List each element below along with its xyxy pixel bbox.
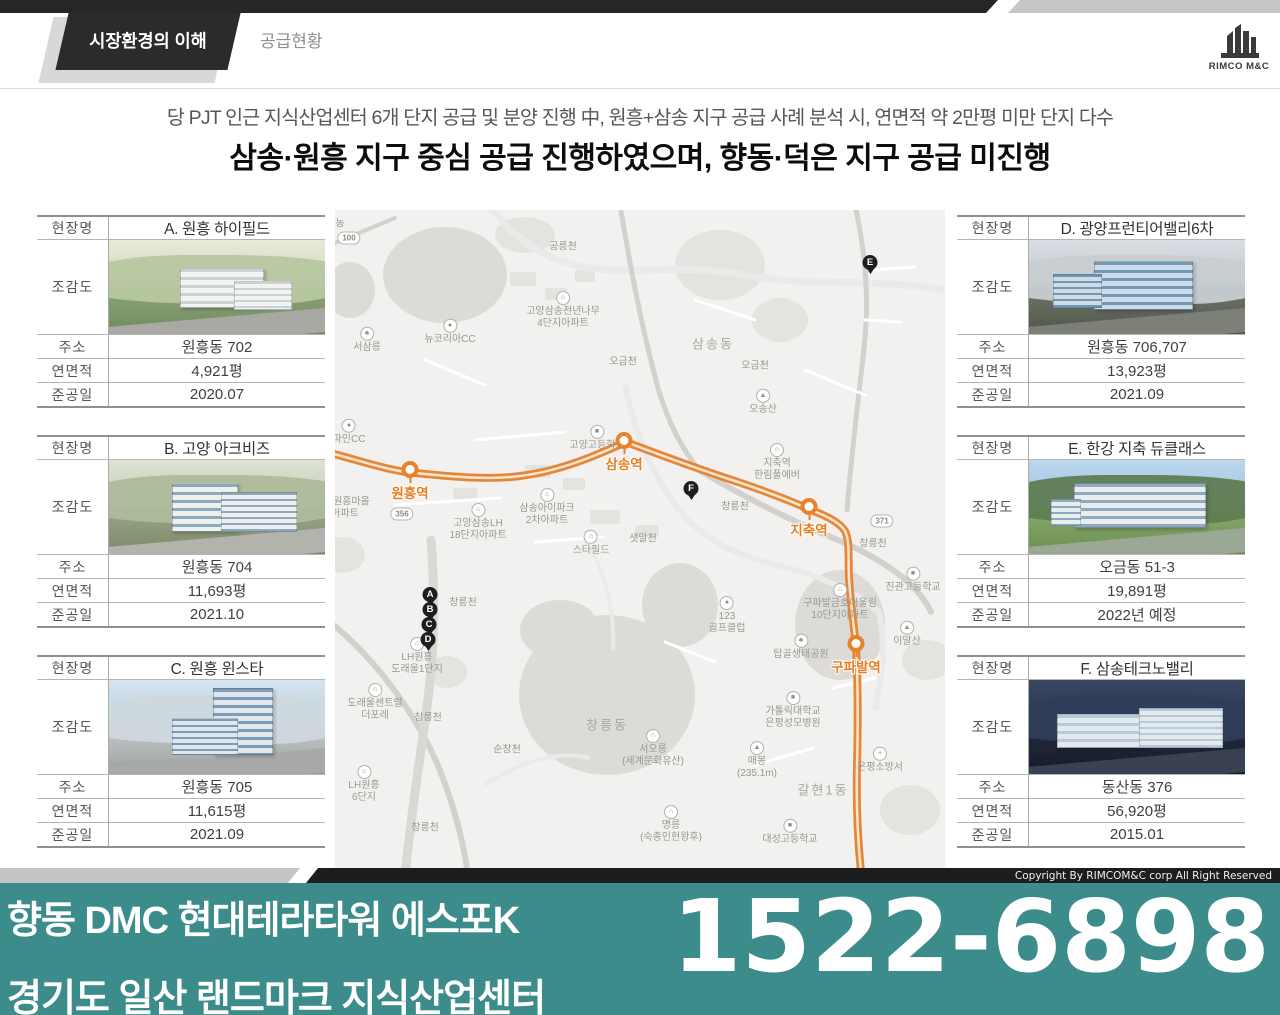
- map-label-line: 고양삼송LH: [453, 518, 503, 530]
- card-site-name: D. 광양프런티어밸리6차: [1029, 217, 1245, 239]
- site-map: 농공릉천⌂고양삼송천년나무4단지아파트●뉴코리아CC♣서삼릉삼송동오금천오금천▲…: [335, 210, 945, 870]
- card-field-label-gfa: 연면적: [957, 359, 1029, 382]
- card-rendering-scene: [1029, 460, 1245, 554]
- map-label: ●123골프클럽: [709, 596, 746, 634]
- apt-icon: ⌂: [770, 443, 784, 457]
- scene-wing: [1051, 499, 1081, 525]
- station-label: 구파발역: [831, 656, 881, 676]
- card-site-name: E. 한강 지축 듀클래스: [1029, 437, 1245, 459]
- map-pin-a: A: [423, 587, 438, 602]
- station-label: 삼송역: [605, 453, 642, 473]
- station-dot-icon: [801, 498, 818, 515]
- map-label: ■진관고등학교: [885, 567, 940, 594]
- card-row: 조감도: [957, 679, 1245, 774]
- card-field-label-completion: 준공일: [37, 383, 109, 406]
- card-row: 현장명A. 원흥 하이필드: [37, 217, 325, 239]
- map-label: ⌂구파발금호어울림10단지아파트: [803, 583, 877, 621]
- map-label-line: 명릉: [662, 820, 680, 832]
- tab-ghost-shape-strip: [44, 70, 217, 83]
- card-completion-value: 2021.10: [109, 603, 325, 626]
- card-completion-value: 2022년 예정: [1029, 603, 1245, 626]
- golf-icon: ●: [720, 596, 734, 610]
- card-gfa-value: 4,921평: [109, 359, 325, 382]
- card-field-label-site: 현장명: [37, 437, 109, 459]
- road-number-badge: 356: [390, 508, 413, 521]
- card-row: 준공일2020.07: [37, 382, 325, 406]
- school-icon: ■: [590, 425, 604, 439]
- banner-line1: 향동 DMC 현대테라타워 에스포K: [7, 889, 519, 944]
- card-field-label-site: 현장명: [957, 217, 1029, 239]
- card-field-label-completion: 준공일: [957, 383, 1029, 406]
- map-label: ∩서오릉(세계문화유산): [622, 729, 684, 767]
- logo-text: RIMCO M&C: [1204, 61, 1274, 72]
- station-dot-icon: [848, 635, 865, 652]
- map-label-line: 고양삼송천년나무: [526, 306, 600, 318]
- map-label: ●뉴코리아CC: [424, 319, 475, 346]
- card-address-value: 원흥동 705: [109, 775, 325, 798]
- scene-main: [1094, 261, 1193, 310]
- map-label-line: 한림풀에버: [754, 470, 800, 482]
- station-marker: 지축역: [801, 498, 818, 520]
- top-bar-gray: [1008, 0, 1280, 13]
- map-label-line: 구파발금호어울림: [803, 598, 877, 610]
- map-label: ■대성고등학교: [762, 819, 817, 846]
- card-rendering-scene: [1029, 240, 1245, 334]
- map-label-line: 창릉천: [721, 501, 749, 513]
- card-address-value: 동산동 376: [1029, 775, 1245, 798]
- card-site-name: C. 원흥 윈스타: [109, 657, 325, 679]
- school-icon: ■: [783, 819, 797, 833]
- map-label-line: 농: [335, 218, 344, 230]
- card-completion-value: 2021.09: [1029, 383, 1245, 406]
- school-icon: ■: [786, 691, 800, 705]
- tree-icon: ♣: [360, 327, 374, 341]
- scene-main: [1074, 483, 1206, 528]
- station-label: 원흥역: [391, 482, 428, 502]
- map-label-line: 은평성모병원: [765, 718, 820, 730]
- card-row: 준공일2021.09: [957, 382, 1245, 406]
- map-label: ⌂LH원흥도래울1단지: [391, 637, 443, 675]
- map-label-line: 골프클럽: [709, 623, 746, 635]
- map-label: 창릉천: [414, 712, 442, 724]
- map-label-line: LH원흥: [348, 780, 379, 792]
- card-rendering-cell: [109, 240, 325, 334]
- map-label-line: 창릉천: [449, 597, 477, 609]
- card-row: 주소원흥동 705: [37, 774, 325, 798]
- station-marker: 삼송역: [616, 432, 633, 454]
- tab-secondary-label[interactable]: 공급현황: [260, 13, 323, 70]
- card-completion-value: 2021.09: [109, 823, 325, 846]
- card-field-label-rendering: 조감도: [37, 680, 109, 774]
- scene-road: [109, 305, 325, 334]
- map-label-line: 대성고등학교: [762, 834, 817, 846]
- map-label-line: 공릉천: [549, 241, 577, 253]
- property-card: 현장명D. 광양프런티어밸리6차조감도주소원흥동 706,707연면적13,92…: [957, 215, 1245, 408]
- map-label-line: 2차아파트: [526, 515, 568, 527]
- card-field-label-address: 주소: [957, 335, 1029, 358]
- map-label-line: 도래울1단지: [391, 664, 443, 676]
- apt-icon: ⌂: [471, 503, 485, 517]
- card-row: 현장명F. 삼송테크노밸리: [957, 657, 1245, 679]
- footer-gray-strip: [0, 868, 300, 883]
- map-pin-e: E: [863, 255, 878, 270]
- card-rendering-cell: [1029, 680, 1245, 774]
- card-field-label-rendering: 조감도: [37, 460, 109, 554]
- map-label-line: LH원흥마을: [335, 497, 370, 509]
- map-label: ⌂LH원흥6단지: [348, 765, 379, 803]
- card-completion-value: 2015.01: [1029, 823, 1245, 846]
- map-label: +은평소방서: [857, 747, 903, 774]
- property-card: 현장명A. 원흥 하이필드조감도주소원흥동 702연면적4,921평준공일202…: [37, 215, 325, 408]
- card-field-label-gfa: 연면적: [957, 799, 1029, 822]
- map-label-line: 10단지아파트: [811, 610, 868, 622]
- road-number-badge: 100: [337, 232, 360, 245]
- map-label-line: 123: [719, 611, 736, 623]
- map-label-line: 갈현1동: [797, 784, 848, 796]
- card-completion-value: 2020.07: [109, 383, 325, 406]
- map-label: ⌂고양삼송천년나무4단지아파트: [526, 291, 600, 329]
- scene-wing: [234, 281, 292, 309]
- card-field-label-address: 주소: [37, 555, 109, 578]
- map-label-line: 4단지아파트: [537, 318, 589, 330]
- map-label-line: 지축역: [763, 458, 791, 470]
- card-rendering-cell: [109, 460, 325, 554]
- map-label: 삼송동: [692, 338, 734, 350]
- top-bar-black: [0, 0, 998, 13]
- map-label-line: 더포레: [361, 710, 389, 722]
- scene-wing: [172, 718, 239, 756]
- map-label: ⌂스타필드: [573, 530, 610, 557]
- card-row: 조감도: [957, 239, 1245, 334]
- card-address-value: 원흥동 702: [109, 335, 325, 358]
- scene-road: [1029, 525, 1245, 554]
- card-row: 현장명E. 한강 지축 듀클래스: [957, 437, 1245, 459]
- map-label: 창릉천: [411, 822, 439, 834]
- card-rendering-cell: [1029, 240, 1245, 334]
- map-label-line: 오금천: [609, 356, 637, 368]
- map-label: 오금천: [609, 356, 637, 368]
- map-label-line: 오송산: [749, 404, 777, 416]
- map-label: ∩명릉(숙종인현왕후): [640, 805, 702, 843]
- map-label-line: 이말산: [893, 636, 921, 648]
- station-label: 지축역: [790, 519, 827, 539]
- card-row: 조감도: [37, 679, 325, 774]
- map-label: ▲오송산: [749, 389, 777, 416]
- map-pin-d: D: [421, 632, 436, 647]
- map-label-line: 아파트: [335, 508, 359, 520]
- map-label-line: 은평소방서: [857, 762, 903, 774]
- map-label-line: 삼송아이파크: [519, 503, 574, 515]
- apt-icon: ⌂: [357, 765, 371, 779]
- card-row: 주소원흥동 706,707: [957, 334, 1245, 358]
- card-field-label-rendering: 조감도: [957, 240, 1029, 334]
- scene-road: [1029, 745, 1245, 774]
- banner-line2: 경기도 일산 랜드마크 지식산업센터: [7, 967, 545, 1015]
- card-gfa-value: 56,920평: [1029, 799, 1245, 822]
- card-field-label-completion: 준공일: [957, 603, 1029, 626]
- card-field-label-site: 현장명: [37, 217, 109, 239]
- property-card: 현장명C. 원흥 윈스타조감도주소원흥동 705연면적11,615평준공일202…: [37, 655, 325, 848]
- map-label: 창릉천: [721, 501, 749, 513]
- map-label-line: (235.1m): [737, 768, 777, 780]
- card-address-value: 오금동 51-3: [1029, 555, 1245, 578]
- card-row: 연면적56,920평: [957, 798, 1245, 822]
- card-row: 연면적4,921평: [37, 358, 325, 382]
- scene-wing: [221, 492, 296, 532]
- rimco-logo: RIMCO M&C: [1204, 24, 1274, 72]
- card-field-label-completion: 준공일: [37, 603, 109, 626]
- map-label: ⌂삼송아이파크2차아파트: [519, 488, 574, 526]
- mtn-icon: ▲: [756, 389, 770, 403]
- headline-sub: 당 PJT 인근 지식산업센터 6개 단지 공급 및 분양 진행 中, 원흥+삼…: [0, 101, 1280, 130]
- card-row: 주소원흥동 704: [37, 554, 325, 578]
- map-label-line: 창릉천: [859, 538, 887, 550]
- golf-icon: ●: [342, 419, 356, 433]
- card-rendering-cell: [109, 680, 325, 774]
- map-label: 농: [335, 218, 344, 230]
- map-label-line: 도래울센트럴: [347, 698, 402, 710]
- card-row: 준공일2021.09: [37, 822, 325, 846]
- scene-main: [1057, 714, 1145, 748]
- card-field-label-gfa: 연면적: [957, 579, 1029, 602]
- map-label: 갈현1동: [797, 784, 848, 796]
- card-gfa-value: 11,615평: [109, 799, 325, 822]
- card-gfa-value: 19,891평: [1029, 579, 1245, 602]
- map-label-line: (숙종인현왕후): [640, 832, 702, 844]
- card-gfa-value: 13,923평: [1029, 359, 1245, 382]
- road-number-badge: 371: [870, 515, 893, 528]
- card-rendering-cell: [1029, 460, 1245, 554]
- map-label-line: 진관고등학교: [885, 582, 940, 594]
- tree-icon: ♣: [794, 634, 808, 648]
- map-label-line: 창릉천: [411, 822, 439, 834]
- tab-active-label[interactable]: 시장환경의 이해: [62, 13, 234, 70]
- card-row: 주소원흥동 702: [37, 334, 325, 358]
- mtn-icon: ▲: [750, 741, 764, 755]
- card-row: 연면적11,615평: [37, 798, 325, 822]
- card-row: 준공일2022년 예정: [957, 602, 1245, 626]
- scene-wing: [1053, 274, 1103, 308]
- school-icon: ■: [906, 567, 920, 581]
- building-icon: [1217, 24, 1261, 60]
- card-row: 주소동산동 376: [957, 774, 1245, 798]
- card-row: 연면적19,891평: [957, 578, 1245, 602]
- map-label-line: 탑골생태공원: [773, 649, 828, 661]
- card-row: 현장명B. 고양 아크비즈: [37, 437, 325, 459]
- map-label: 오금천: [741, 360, 769, 372]
- map-label: ▲이말산: [893, 621, 921, 648]
- property-card: 현장명B. 고양 아크비즈조감도주소원흥동 704연면적11,693평준공일20…: [37, 435, 325, 628]
- property-card: 현장명F. 삼송테크노밸리조감도주소동산동 376연면적56,920평준공일20…: [957, 655, 1245, 848]
- map-label: 샛말천: [629, 533, 657, 545]
- map-label: 창릉천: [449, 597, 477, 609]
- card-gfa-value: 11,693평: [109, 579, 325, 602]
- card-field-label-address: 주소: [957, 555, 1029, 578]
- map-label-line: 순창천: [493, 744, 521, 756]
- map-label: ♣탑골생태공원: [773, 634, 828, 661]
- header-divider: [0, 88, 1280, 89]
- card-rendering-scene: [1029, 680, 1245, 774]
- card-row: 현장명D. 광양프런티어밸리6차: [957, 217, 1245, 239]
- card-field-label-completion: 준공일: [37, 823, 109, 846]
- map-label: ●파인CC: [335, 419, 365, 446]
- card-row: 조감도: [957, 459, 1245, 554]
- fire-icon: +: [873, 747, 887, 761]
- map-label-line: 스타필드: [573, 545, 610, 557]
- apt-icon: ⌂: [833, 583, 847, 597]
- card-site-name: B. 고양 아크비즈: [109, 437, 325, 459]
- map-label-line: 가톨릭대학교: [765, 706, 820, 718]
- card-rendering-scene: [109, 680, 325, 774]
- card-row: 연면적13,923평: [957, 358, 1245, 382]
- card-site-name: A. 원흥 하이필드: [109, 217, 325, 239]
- apt-icon: ⌂: [556, 291, 570, 305]
- map-label: 창릉천: [859, 538, 887, 550]
- card-row: 준공일2015.01: [957, 822, 1245, 846]
- apt-icon: ⌂: [540, 488, 554, 502]
- card-address-value: 원흥동 704: [109, 555, 325, 578]
- map-label-line: 파인CC: [335, 434, 365, 446]
- card-row: 현장명C. 원흥 윈스타: [37, 657, 325, 679]
- map-label-line: 매봉: [748, 756, 766, 768]
- map-label: ⌂도래울센트럴더포레: [347, 683, 402, 721]
- card-field-label-rendering: 조감도: [957, 460, 1029, 554]
- map-label: LH원흥마을아파트: [335, 497, 370, 520]
- map-pin-b: B: [423, 602, 438, 617]
- card-field-label-rendering: 조감도: [37, 240, 109, 334]
- map-label-line: 창릉천: [414, 712, 442, 724]
- card-field-label-rendering: 조감도: [957, 680, 1029, 774]
- map-label: 순창천: [493, 744, 521, 756]
- map-label-line: 뉴코리아CC: [424, 334, 475, 346]
- map-label: ▲매봉(235.1m): [737, 741, 777, 779]
- card-row: 조감도: [37, 459, 325, 554]
- property-card: 현장명E. 한강 지축 듀클래스조감도주소오금동 51-3연면적19,891평준…: [957, 435, 1245, 628]
- card-row: 준공일2021.10: [37, 602, 325, 626]
- card-field-label-gfa: 연면적: [37, 579, 109, 602]
- card-field-label-address: 주소: [957, 775, 1029, 798]
- card-row: 주소오금동 51-3: [957, 554, 1245, 578]
- card-field-label-site: 현장명: [957, 437, 1029, 459]
- station-dot-icon: [616, 432, 633, 449]
- card-address-value: 원흥동 706,707: [1029, 335, 1245, 358]
- headline-main: 삼송·원흥 지구 중심 공급 진행하였으며, 향동·덕은 지구 공급 미진행: [0, 133, 1280, 177]
- map-label: 공릉천: [549, 241, 577, 253]
- map-label-line: 오금천: [741, 360, 769, 372]
- golf-icon: ●: [443, 319, 457, 333]
- scene-wing: [1139, 708, 1223, 748]
- card-row: 조감도: [37, 239, 325, 334]
- map-pin-c: C: [422, 617, 437, 632]
- bottom-banner: 향동 DMC 현대테라타워 에스포K 경기도 일산 랜드마크 지식산업센터 15…: [0, 883, 1280, 1015]
- card-row: 연면적11,693평: [37, 578, 325, 602]
- map-pin-f: F: [684, 481, 699, 496]
- card-rendering-scene: [109, 240, 325, 334]
- apt-icon: ⌂: [584, 530, 598, 544]
- card-field-label-address: 주소: [37, 335, 109, 358]
- map-label-line: (세계문화유산): [622, 756, 684, 768]
- card-field-label-gfa: 연면적: [37, 359, 109, 382]
- map-label: ⌂지축역한림풀에버: [754, 443, 800, 481]
- map-label-line: 6단지: [352, 792, 376, 804]
- card-site-name: F. 삼송테크노밸리: [1029, 657, 1245, 679]
- map-label-line: 서삼릉: [353, 342, 381, 354]
- map-label-line: 서오릉: [639, 744, 667, 756]
- mtn-icon: ▲: [900, 621, 914, 635]
- card-field-label-completion: 준공일: [957, 823, 1029, 846]
- map-label: ■가톨릭대학교은평성모병원: [765, 691, 820, 729]
- card-rendering-scene: [109, 460, 325, 554]
- station-marker: 원흥역: [402, 461, 419, 483]
- map-label: ♣서삼릉: [353, 327, 381, 354]
- slide-root: 시장환경의 이해 공급현황 RIMCO M&C 당 PJT 인근 지식산업센터 …: [0, 0, 1280, 1015]
- heritage-icon: ∩: [646, 729, 660, 743]
- station-marker: 구파발역: [848, 635, 865, 657]
- apt-icon: ⌂: [368, 683, 382, 697]
- map-label-line: 18단지아파트: [449, 530, 506, 542]
- card-field-label-site: 현장명: [37, 657, 109, 679]
- station-dot-icon: [402, 461, 419, 478]
- map-label-line: 샛말천: [629, 533, 657, 545]
- heritage-icon: ∩: [664, 805, 678, 819]
- card-field-label-address: 주소: [37, 775, 109, 798]
- phone-number: 1522-6898: [672, 887, 1270, 987]
- card-field-label-site: 현장명: [957, 657, 1029, 679]
- map-label: ⌂고양삼송LH18단지아파트: [449, 503, 506, 541]
- map-label-line: 삼송동: [692, 338, 734, 350]
- card-field-label-gfa: 연면적: [37, 799, 109, 822]
